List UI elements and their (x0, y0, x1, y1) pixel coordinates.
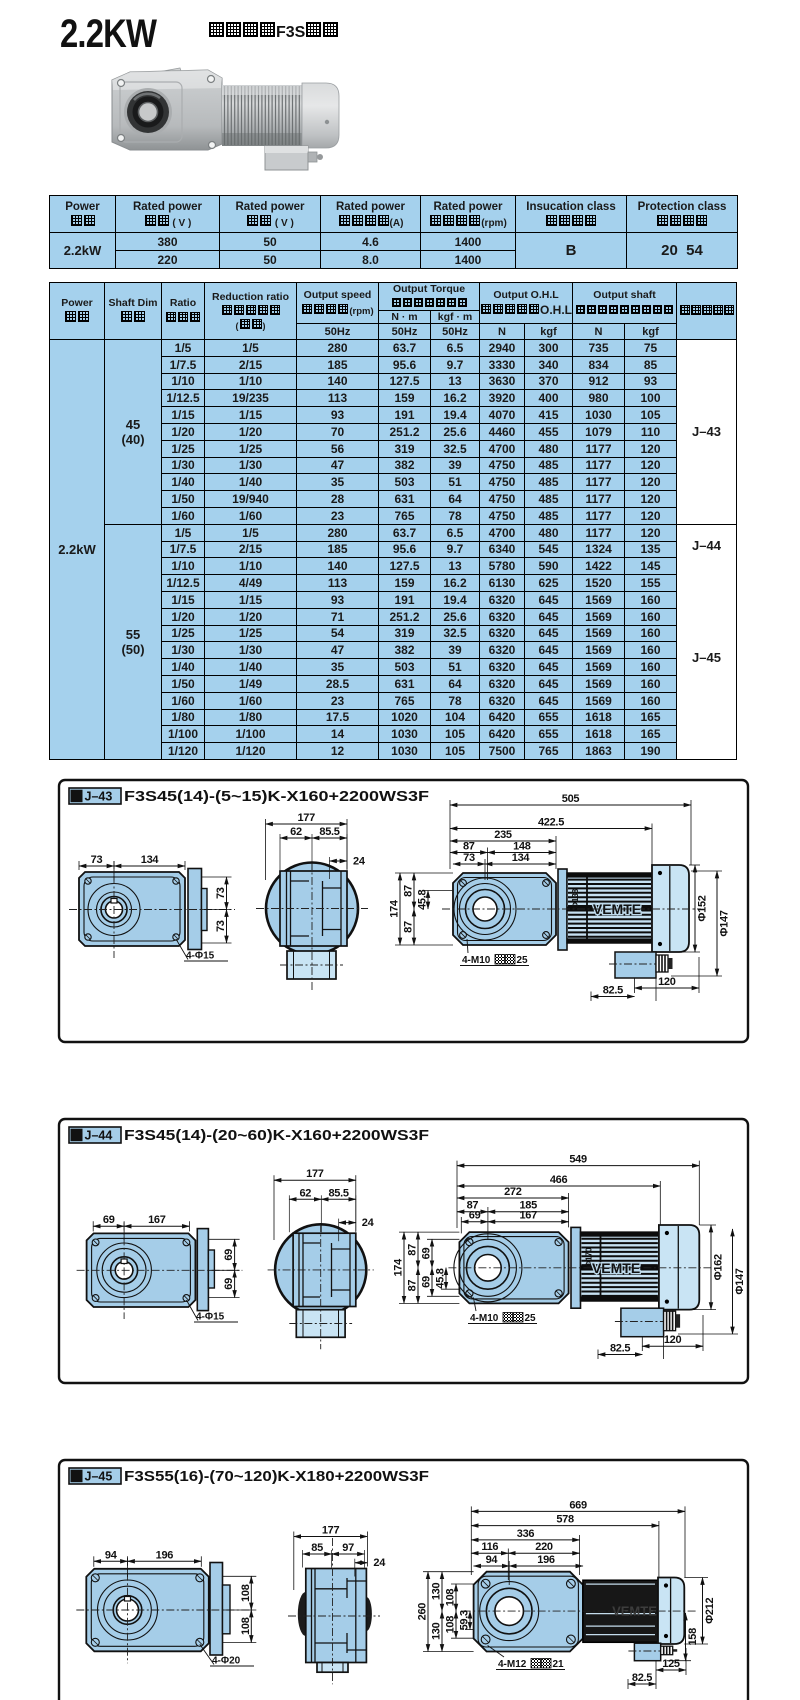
svg-text:82.5: 82.5 (603, 985, 623, 997)
svg-text:116: 116 (481, 1541, 498, 1553)
svg-text:220: 220 (535, 1541, 553, 1553)
svg-text:F3S45(14)-(20~60)K-X160+2200WS: F3S45(14)-(20~60)K-X160+2200WS3F (124, 1128, 429, 1144)
svg-text:422.5: 422.5 (538, 817, 564, 829)
svg-text:24: 24 (353, 856, 366, 868)
svg-text:85.5: 85.5 (328, 1187, 348, 1199)
svg-text:167: 167 (519, 1210, 537, 1222)
svg-text:69: 69 (103, 1214, 115, 1226)
svg-text:J–44: J–44 (85, 1129, 113, 1143)
svg-text:4-Φ15: 4-Φ15 (186, 951, 215, 962)
svg-text:94: 94 (486, 1554, 499, 1566)
svg-text:45.8: 45.8 (417, 890, 429, 910)
svg-text:174: 174 (393, 1258, 405, 1277)
svg-text:87: 87 (407, 1280, 419, 1292)
svg-text:Φ147: Φ147 (734, 1268, 746, 1294)
svg-text:45.8: 45.8 (435, 1268, 447, 1288)
svg-text:69: 69 (223, 1249, 235, 1261)
svg-text:J–43: J–43 (85, 790, 113, 804)
svg-text:125: 125 (662, 1658, 680, 1670)
svg-text:148: 148 (513, 841, 531, 853)
svg-text:97: 97 (342, 1542, 354, 1554)
svg-text:59.3: 59.3 (459, 1610, 471, 1630)
svg-text:24: 24 (362, 1217, 375, 1229)
svg-text:Φ152: Φ152 (697, 895, 709, 921)
svg-text:108: 108 (240, 1584, 252, 1602)
svg-text:174: 174 (389, 899, 401, 918)
svg-text:177: 177 (306, 1168, 324, 1180)
svg-text:73: 73 (91, 854, 103, 866)
svg-text:108: 108 (240, 1617, 252, 1635)
svg-text:69: 69 (421, 1276, 433, 1288)
svg-text:177: 177 (322, 1525, 340, 1537)
svg-text:87: 87 (407, 1244, 419, 1256)
svg-text:F3S45(14)-(5~15)K-X160+2200WS3: F3S45(14)-(5~15)K-X160+2200WS3F (124, 789, 429, 805)
svg-text:4-M10: 4-M10 (470, 1313, 499, 1324)
svg-text:4-Φ20: 4-Φ20 (212, 1656, 241, 1667)
svg-text:177: 177 (297, 812, 315, 824)
svg-text:196: 196 (156, 1549, 174, 1561)
svg-text:134: 134 (512, 852, 531, 864)
svg-text:134: 134 (141, 854, 160, 866)
svg-text:Φ212: Φ212 (704, 1598, 716, 1624)
svg-text:130: 130 (431, 1622, 443, 1640)
svg-text:272: 272 (504, 1186, 522, 1198)
svg-text:94: 94 (105, 1549, 118, 1561)
svg-text:F3S55(16)-(70~120)K-X180+2200W: F3S55(16)-(70~120)K-X180+2200WS3F (124, 1469, 429, 1485)
svg-text:578: 578 (556, 1514, 574, 1526)
svg-text:108: 108 (445, 1616, 457, 1634)
svg-text:73: 73 (215, 887, 227, 899)
svg-text:108: 108 (445, 1589, 457, 1607)
svg-text:25: 25 (525, 1313, 537, 1324)
svg-text:J–45: J–45 (85, 1470, 113, 1484)
svg-text:669: 669 (569, 1499, 587, 1511)
svg-text:4-M12: 4-M12 (498, 1659, 527, 1670)
svg-text:62: 62 (290, 826, 302, 838)
svg-text:69: 69 (223, 1278, 235, 1290)
svg-text:Φ162: Φ162 (713, 1254, 725, 1280)
svg-text:25: 25 (517, 955, 529, 966)
svg-text:73: 73 (463, 852, 475, 864)
svg-text:4-Φ15: 4-Φ15 (196, 1312, 225, 1323)
svg-text:167: 167 (148, 1214, 166, 1226)
svg-text:336: 336 (517, 1528, 535, 1540)
svg-text:120: 120 (658, 976, 676, 988)
svg-text:21: 21 (553, 1659, 565, 1670)
svg-text:196: 196 (537, 1554, 555, 1566)
svg-text:120: 120 (664, 1334, 682, 1346)
svg-text:466: 466 (550, 1174, 568, 1186)
svg-text:130: 130 (431, 1582, 443, 1600)
svg-text:69: 69 (421, 1248, 433, 1260)
svg-text:Φ147: Φ147 (719, 910, 731, 936)
svg-text:Φ138: Φ138 (570, 888, 580, 909)
svg-text:62: 62 (299, 1187, 311, 1199)
svg-text:69: 69 (469, 1210, 481, 1222)
svg-text:87: 87 (403, 921, 415, 933)
svg-text:85.5: 85.5 (319, 826, 339, 838)
svg-text:87: 87 (463, 841, 475, 853)
svg-text:235: 235 (494, 829, 512, 841)
svg-text:4-M10: 4-M10 (462, 955, 491, 966)
svg-text:87: 87 (403, 885, 415, 897)
svg-text:73: 73 (215, 920, 227, 932)
svg-text:24: 24 (373, 1557, 386, 1569)
svg-text:260: 260 (417, 1603, 429, 1621)
svg-text:549: 549 (569, 1154, 587, 1166)
svg-text:85: 85 (311, 1542, 323, 1554)
svg-text:82.5: 82.5 (610, 1343, 630, 1355)
svg-text:158: 158 (687, 1628, 699, 1646)
svg-text:82.5: 82.5 (632, 1672, 652, 1684)
svg-text:505: 505 (562, 793, 580, 805)
